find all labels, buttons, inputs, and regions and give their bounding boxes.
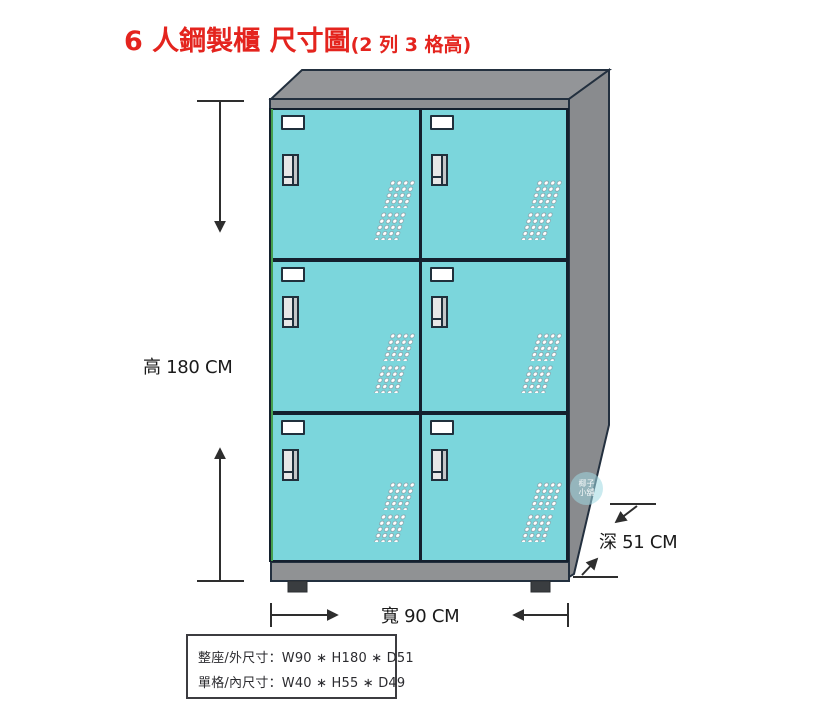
door-handle: [282, 296, 299, 328]
locker-door: [422, 415, 566, 560]
height-dimension-label: 高 180 CM: [143, 353, 233, 379]
name-plate: [281, 420, 305, 435]
locker-door: [273, 110, 419, 258]
depth-dimension-label: 深 51 CM: [599, 528, 677, 554]
cabinet-base: [271, 562, 569, 581]
door-handle: [282, 449, 299, 481]
locker-door: [422, 110, 566, 258]
spec-overall-size: 整座/外尺寸：W90 ∗ H180 ∗ D51: [198, 646, 395, 671]
vent-holes: [373, 180, 415, 240]
width-dimension-label: 寬 90 CM: [381, 602, 459, 628]
height-dimension-lines: [197, 101, 244, 581]
locker-dimension-diagram: 6 人鋼製櫃 尺寸圖 (2 列 3 格高): [0, 0, 831, 720]
door-handle: [431, 296, 448, 328]
door-handle: [282, 154, 299, 186]
vent-holes: [373, 482, 415, 542]
watermark-badge: 椰子 小舖: [570, 472, 603, 505]
locker-door-grid: [269, 108, 569, 562]
locker-door: [273, 262, 419, 411]
cabinet-feet: [288, 581, 550, 592]
watermark-line2: 小舖: [579, 489, 595, 498]
vent-holes: [373, 333, 415, 393]
name-plate: [430, 115, 454, 130]
spec-cell-size: 單格/內尺寸：W40 ∗ H55 ∗ D49: [198, 671, 395, 696]
vent-holes: [520, 482, 562, 542]
vent-holes: [520, 180, 562, 240]
name-plate: [430, 420, 454, 435]
locker-door: [273, 415, 419, 560]
name-plate: [430, 267, 454, 282]
door-handle: [431, 154, 448, 186]
name-plate: [281, 267, 305, 282]
locker-door: [422, 262, 566, 411]
cabinet-top-slab: [271, 70, 609, 99]
vent-holes: [520, 333, 562, 393]
door-handle: [431, 449, 448, 481]
name-plate: [281, 115, 305, 130]
spec-box: 整座/外尺寸：W90 ∗ H180 ∗ D51 單格/內尺寸：W40 ∗ H55…: [186, 634, 397, 699]
